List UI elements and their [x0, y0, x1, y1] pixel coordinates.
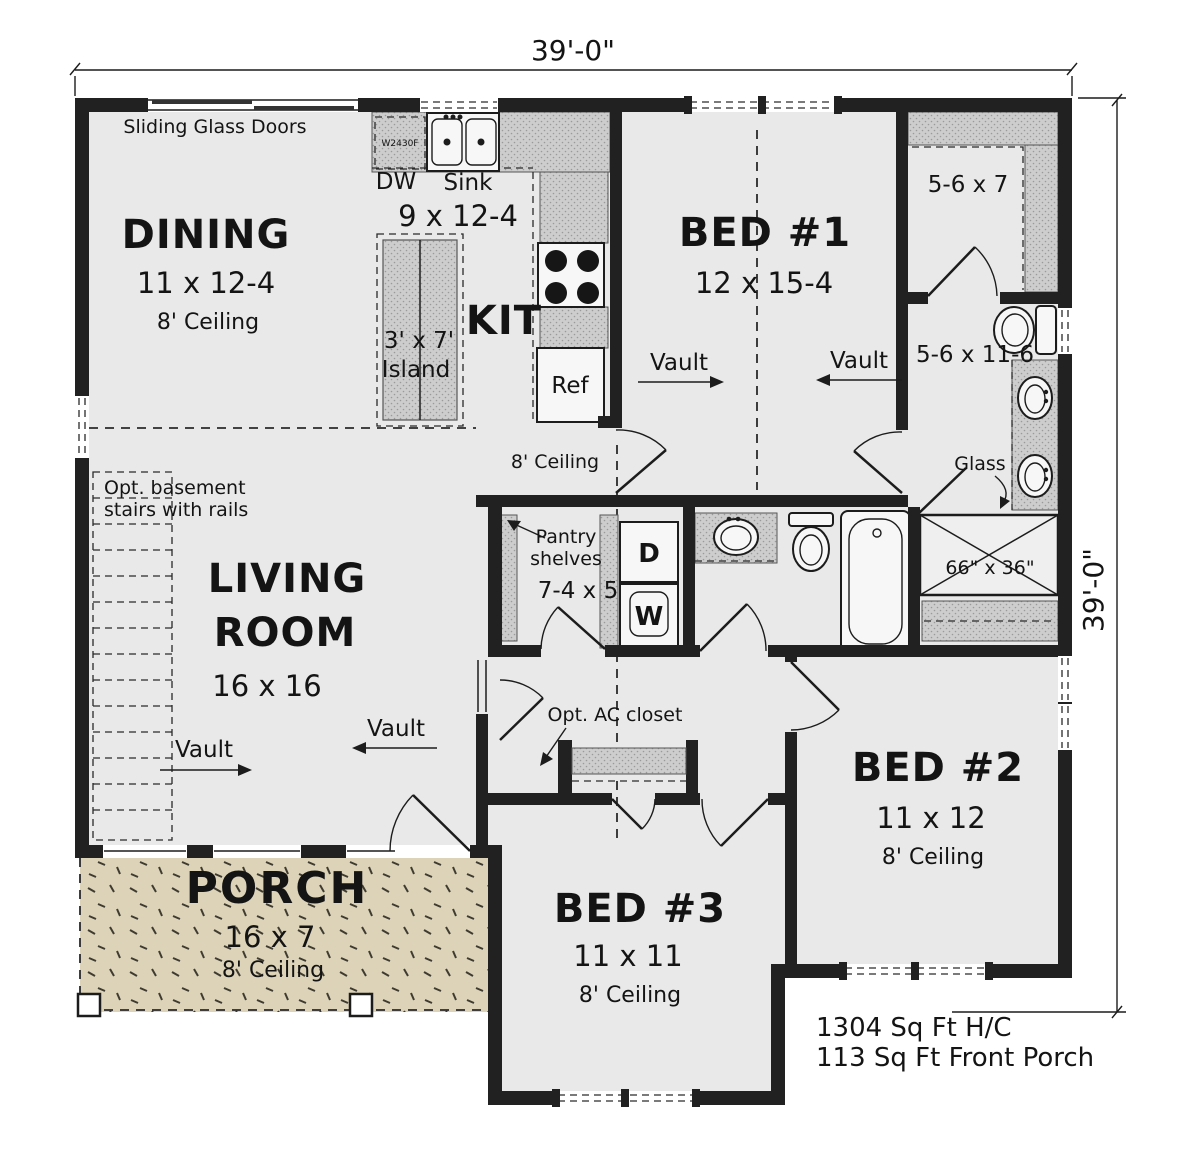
top-dimension: 39'-0" — [531, 34, 615, 67]
bathtub-icon — [841, 511, 910, 652]
left-window-icon — [75, 396, 89, 458]
living-name-line2: ROOM — [214, 610, 357, 656]
front-door-opening — [396, 845, 470, 858]
vault-label: Vault — [367, 716, 425, 742]
pantry-label-line1: Pantry — [536, 526, 597, 548]
sliding-doors-label: Sliding Glass Doors — [123, 116, 306, 138]
kitchen-counter-right2 — [540, 307, 608, 348]
glass-label: Glass — [954, 453, 1005, 475]
sink-label: Sink — [444, 170, 494, 196]
ref-label: Ref — [551, 373, 589, 399]
bed2-name: BED #2 — [852, 745, 1024, 791]
dishwasher-label: DW — [376, 169, 416, 195]
toilet-icon — [1036, 306, 1056, 354]
bed3-name: BED #3 — [554, 886, 726, 932]
laundry-size: 7-4 x 5 — [538, 578, 618, 604]
dryer-label: D — [638, 539, 660, 569]
dining-ceiling: 8' Ceiling — [157, 310, 259, 335]
sqft-heated: 1304 Sq Ft H/C — [816, 1013, 1012, 1043]
sqft-porch: 113 Sq Ft Front Porch — [816, 1043, 1094, 1073]
toilet-icon — [789, 513, 833, 526]
bed1-size: 12 x 15-4 — [695, 266, 833, 300]
bed3-ceiling: 8' Ceiling — [579, 983, 681, 1008]
kitchen-window-icon — [420, 98, 498, 112]
kitchen-name: KIT — [466, 298, 542, 344]
living-name-line1: LIVING — [208, 556, 367, 602]
porch-size: 16 x 7 — [225, 920, 316, 954]
bed2-window-icon — [1058, 704, 1072, 750]
island-label: Island — [382, 357, 450, 383]
bed1-name: BED #1 — [679, 210, 851, 256]
bath-window-icon — [1058, 308, 1072, 354]
washer-label: W — [635, 602, 664, 632]
dining-name: DINING — [122, 212, 291, 258]
bed2-ceiling: 8' Ceiling — [882, 845, 984, 870]
porch-post-icon — [78, 994, 100, 1016]
bed2-window-icon — [1058, 656, 1072, 702]
hall-ceiling: 8' Ceiling — [511, 451, 599, 473]
kitchen-counter-right — [540, 172, 608, 243]
ac-closet-label: Opt. AC closet — [548, 704, 683, 726]
porch-post-icon — [350, 994, 372, 1016]
dining-size: 11 x 12-4 — [137, 266, 275, 300]
floor-plan-drawing: 39'-0" 39'-0" Sliding Glass Doors W2430F… — [0, 0, 1200, 1158]
right-dimension: 39'-0" — [1077, 548, 1110, 632]
shower-size: 66" x 36" — [945, 557, 1034, 579]
bath-size: 5-6 x 11-6 — [916, 342, 1034, 368]
kitchen-sink — [427, 113, 499, 171]
cabinet-label: W2430F — [382, 139, 419, 149]
pantry-label-line2: shelves — [530, 548, 602, 570]
stairs-note-line2: stairs with rails — [104, 499, 248, 521]
porch-name: PORCH — [186, 863, 369, 914]
vault-label: Vault — [650, 350, 708, 376]
island-size: 3' x 7' — [384, 328, 454, 354]
living-size: 16 x 16 — [212, 669, 321, 703]
kitchen-size: 9 x 12-4 — [398, 199, 518, 233]
bed2-size: 11 x 12 — [876, 801, 985, 835]
bed3-size: 11 x 11 — [573, 939, 682, 973]
closet-size: 5-6 x 7 — [928, 172, 1008, 198]
vault-label: Vault — [175, 737, 233, 763]
vault-label: Vault — [830, 348, 888, 374]
floor-plan-page: 39'-0" 39'-0" Sliding Glass Doors W2430F… — [0, 0, 1200, 1158]
stairs-note-line1: Opt. basement — [104, 477, 246, 499]
porch-ceiling: 8' Ceiling — [222, 958, 324, 983]
